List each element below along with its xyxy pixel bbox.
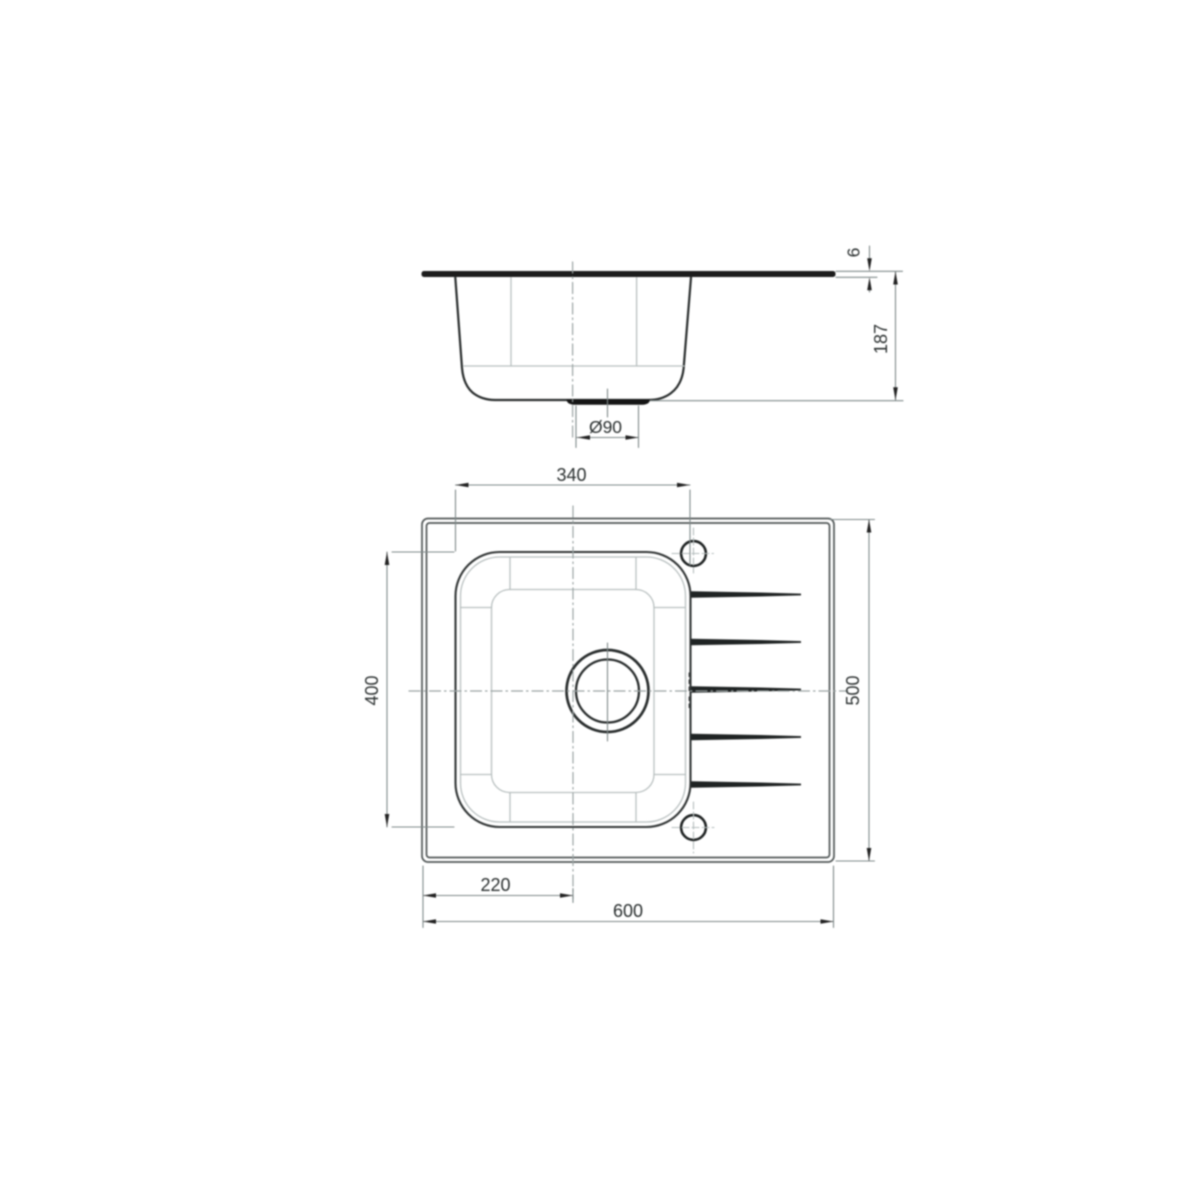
svg-text:Ø90: Ø90 <box>589 417 622 437</box>
svg-text:600: 600 <box>613 901 643 921</box>
svg-text:220: 220 <box>480 875 510 895</box>
svg-text:340: 340 <box>556 465 586 485</box>
svg-text:6: 6 <box>844 248 864 258</box>
svg-text:500: 500 <box>843 675 863 705</box>
svg-text:187: 187 <box>871 324 891 354</box>
svg-text:400: 400 <box>362 675 382 705</box>
